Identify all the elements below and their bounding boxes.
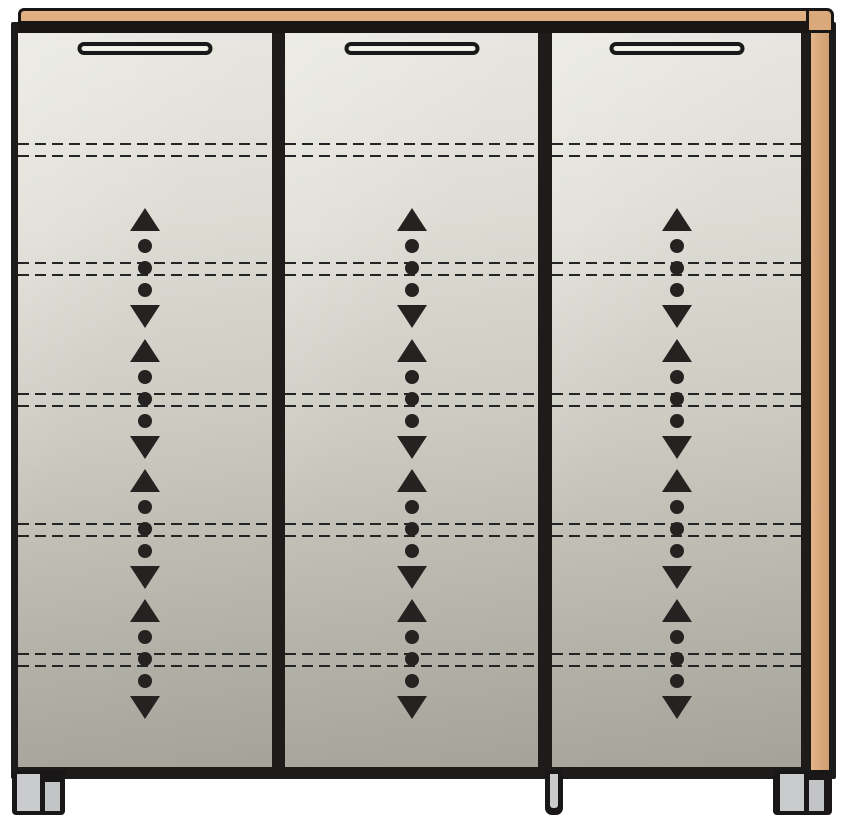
dot-icon — [138, 652, 152, 666]
adjustable-shelf-symbol — [396, 469, 428, 589]
foot-front-face — [17, 774, 40, 811]
arrow-up-icon — [662, 469, 692, 492]
dot-icon — [405, 370, 419, 384]
dot-icon — [405, 544, 419, 558]
dot-icon — [138, 414, 152, 428]
adjustable-shelf-symbol — [396, 208, 428, 328]
adjustable-shelf-symbol — [396, 599, 428, 719]
shelf-dashed-line — [18, 155, 272, 157]
dot-icon — [670, 283, 684, 297]
handle-slot — [84, 47, 207, 50]
arrow-up-icon — [130, 339, 160, 362]
arrow-down-icon — [397, 566, 427, 589]
dot-icon — [405, 414, 419, 428]
foot-side-face — [45, 782, 60, 811]
door-handle — [78, 42, 213, 55]
arrow-up-icon — [130, 469, 160, 492]
handle-slot — [615, 47, 738, 50]
adjustable-shelf-symbol — [129, 469, 161, 589]
door-handle — [344, 42, 479, 55]
dot-icon — [138, 239, 152, 253]
dot-icon — [670, 239, 684, 253]
arrow-down-icon — [397, 696, 427, 719]
arrow-up-icon — [397, 208, 427, 231]
dot-icon — [405, 392, 419, 406]
foot-side-face — [809, 780, 824, 811]
adjustable-shelf-symbol — [661, 469, 693, 589]
arrow-down-icon — [397, 305, 427, 328]
shelf-dashed-line — [18, 143, 272, 145]
dot-icon — [138, 500, 152, 514]
top-panel-end-cap — [806, 8, 834, 33]
dot-icon — [405, 500, 419, 514]
adjustable-shelf-symbol — [661, 339, 693, 459]
dot-icon — [405, 522, 419, 536]
handle-slot — [350, 47, 473, 50]
dot-icon — [670, 652, 684, 666]
arrow-down-icon — [662, 696, 692, 719]
middle-foot — [545, 770, 563, 815]
top-panel-front-edge — [20, 21, 813, 31]
wood-top-panel — [18, 8, 815, 33]
cabinet-door-right-door — [552, 33, 801, 767]
arrow-down-icon — [130, 696, 160, 719]
arrow-up-icon — [397, 599, 427, 622]
dot-icon — [670, 630, 684, 644]
arrow-down-icon — [397, 436, 427, 459]
adjustable-shelf-symbol — [661, 599, 693, 719]
adjustable-shelf-symbol — [129, 208, 161, 328]
dot-icon — [405, 652, 419, 666]
furniture-diagram — [0, 0, 844, 823]
arrow-down-icon — [662, 566, 692, 589]
adjustable-shelf-symbol — [396, 339, 428, 459]
adjustable-shelf-symbol — [129, 339, 161, 459]
cabinet-door-left-door — [18, 33, 272, 767]
dot-icon — [670, 392, 684, 406]
shelf-dashed-line — [552, 155, 801, 157]
arrow-down-icon — [130, 566, 160, 589]
right-foot — [773, 770, 832, 815]
dot-icon — [138, 544, 152, 558]
left-foot — [12, 770, 65, 815]
arrow-up-icon — [662, 599, 692, 622]
shelf-dashed-line — [552, 143, 801, 145]
dot-icon — [138, 674, 152, 688]
shelf-dashed-line — [285, 143, 538, 145]
adjustable-shelf-symbol — [661, 208, 693, 328]
wood-side-panel-right — [811, 26, 829, 770]
dot-icon — [405, 283, 419, 297]
dot-icon — [405, 239, 419, 253]
dot-icon — [670, 544, 684, 558]
arrow-up-icon — [397, 469, 427, 492]
arrow-down-icon — [662, 436, 692, 459]
foot-front-face — [780, 774, 804, 811]
dot-icon — [670, 414, 684, 428]
dot-icon — [670, 674, 684, 688]
arrow-down-icon — [662, 305, 692, 328]
arrow-up-icon — [130, 599, 160, 622]
foot-front-face — [550, 774, 558, 808]
dot-icon — [670, 261, 684, 275]
dot-icon — [405, 630, 419, 644]
arrow-up-icon — [662, 339, 692, 362]
door-handle — [609, 42, 744, 55]
dot-icon — [405, 261, 419, 275]
dot-icon — [138, 283, 152, 297]
shelf-dashed-line — [285, 155, 538, 157]
dot-icon — [138, 392, 152, 406]
dot-icon — [670, 522, 684, 536]
arrow-up-icon — [130, 208, 160, 231]
cabinet-door-center-door — [285, 33, 538, 767]
adjustable-shelf-symbol — [129, 599, 161, 719]
dot-icon — [138, 522, 152, 536]
dot-icon — [670, 370, 684, 384]
dot-icon — [670, 500, 684, 514]
dot-icon — [138, 370, 152, 384]
dot-icon — [138, 261, 152, 275]
dot-icon — [405, 674, 419, 688]
arrow-down-icon — [130, 305, 160, 328]
dot-icon — [138, 630, 152, 644]
arrow-up-icon — [662, 208, 692, 231]
arrow-up-icon — [397, 339, 427, 362]
arrow-down-icon — [130, 436, 160, 459]
